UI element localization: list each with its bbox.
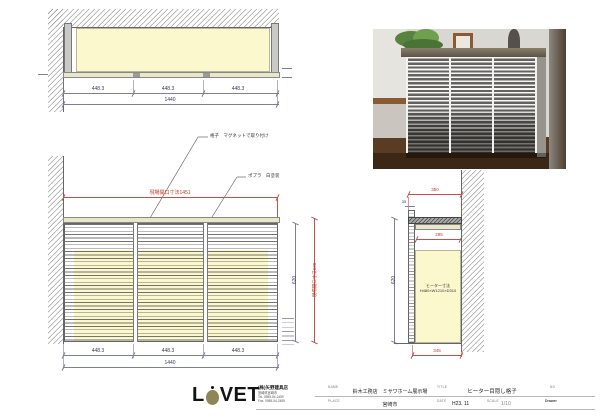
elev-seg-dim-2: 448.3 (148, 348, 188, 354)
sect-heater-label: ヒーター寸法 H480×W1210×D310 (416, 283, 460, 293)
sect-slat-column (408, 210, 415, 343)
field-scale-value: 1/10 (501, 401, 511, 407)
plan-wall-left-hatch (48, 9, 63, 112)
sect-top-width: 350 (420, 187, 450, 193)
plan-right-post (271, 23, 279, 76)
label-material-poplar: ポプラ 白塗装 (248, 173, 280, 178)
elev-divider-1 (133, 223, 138, 342)
plan-seg-dim-3: 448.3 (218, 86, 258, 92)
sect-top-dim-line (408, 194, 462, 195)
field-place-value: 宮崎市 (345, 401, 435, 408)
sect-ext-red (461, 197, 462, 215)
plan-left-post (64, 23, 72, 76)
photo-cover-shadow (406, 153, 546, 158)
company-info: (株)矢野建具店 宮崎県宮崎市 Tel. 0985-54-2459 Fax. 0… (258, 385, 288, 403)
plan-divider-1 (133, 73, 140, 77)
elev-opening-width: 現場開口寸法1451 (95, 190, 245, 196)
sect-inner-dim-line (416, 239, 461, 240)
sect-heater-block: ヒーター寸法 H480×W1210×D310 (415, 250, 461, 343)
plan-micro-dim-left (38, 74, 48, 75)
sect-bottom-dim-line (412, 355, 462, 356)
sect-sub-board (415, 224, 461, 230)
plan-heater-area (76, 28, 270, 72)
photo-cover-top (401, 48, 546, 57)
reference-photo (373, 29, 566, 169)
field-title-label: TITLE (437, 385, 447, 389)
company-fax: Fax. 0985-54-2459 (258, 399, 288, 403)
sect-height: 620 (391, 270, 397, 290)
field-name-label: NAME (328, 385, 338, 389)
elev-opening-height: 現場開口寸法630 (312, 253, 318, 307)
plan-micro-dim-right-2 (282, 77, 292, 78)
field-date-value: H23. 11 (452, 401, 469, 407)
field-no-label: NO (550, 385, 555, 389)
elev-opening-dim-drop (277, 197, 278, 218)
sect-slat-offset: 35 (398, 199, 410, 205)
plan-seg-dim-2: 448.3 (148, 86, 188, 92)
field-drawer-label: Drawer (545, 399, 557, 403)
field-scale-label: SCALE (487, 399, 499, 403)
logo-o-mark (206, 390, 219, 405)
photo-cover-post (492, 57, 494, 153)
photo-cover-post (406, 57, 408, 153)
logo-letter-l: L (192, 384, 205, 407)
title-block-bottomline (256, 409, 595, 410)
sect-floor-line (394, 343, 461, 344)
elev-seg-dim-3: 448.3 (218, 348, 258, 354)
plan-lattice-bar (63, 72, 280, 78)
elev-total-dim: 1440 (150, 360, 190, 366)
elev-opening-dim-line (63, 197, 278, 198)
elev-dim-line-1 (63, 355, 279, 356)
plan-micro-dim-right-1 (282, 68, 292, 69)
elev-tick-red (311, 341, 318, 345)
company-tel: Tel. 0985-54-2459 (258, 395, 288, 399)
company-logo: LVET (192, 384, 260, 407)
plan-dim-line-2 (63, 104, 279, 105)
heater-size-line2: H480×W1210×D310 (416, 288, 460, 293)
elev-body-height: 620 (292, 270, 298, 290)
sect-mini-dim (405, 206, 415, 207)
label-lattice-magnet: 格子 マグネットで取り付け (210, 133, 269, 138)
plan-divider-2 (203, 73, 210, 77)
field-place-label: PLACE (328, 399, 340, 403)
elev-wall-hatch (48, 156, 63, 344)
sect-wall-hatch (461, 170, 484, 352)
plan-dim-line-1 (63, 93, 279, 94)
elev-slat-pitch-dims (282, 318, 294, 345)
photo-cover-side (537, 57, 546, 157)
sect-top-board (408, 217, 462, 224)
photo-right-edge (549, 29, 566, 169)
photo-wall-under-shelf (373, 104, 407, 138)
field-name-value: 鈴木工務店 ミサワホーム展示場 (345, 388, 435, 395)
elev-slats (65, 224, 277, 341)
photo-cover-post (449, 57, 451, 153)
field-title-value: ヒーター目隠し格子 (452, 387, 532, 395)
drawing-sheet: 448.3 448.3 448.3 1440 (0, 0, 600, 420)
elev-seg-dim-1: 448.3 (78, 348, 118, 354)
photo-cover-post (535, 57, 537, 153)
photo-cover-shade (406, 57, 537, 153)
logo-letters-vet: VET (220, 384, 260, 407)
title-block-midline (315, 396, 595, 397)
plan-total-dim: 1440 (150, 97, 190, 103)
field-date-label: DATE (437, 399, 446, 403)
sect-bottom-width: 345 (424, 348, 450, 354)
plan-wall-top-hatch (48, 9, 279, 27)
elev-dim-line-2 (63, 367, 279, 368)
photo-picture-frame-inner (456, 36, 470, 48)
company-name: (株)矢野建具店 (258, 385, 288, 391)
sect-inner-width: 295 (424, 232, 454, 238)
plan-seg-dim-1: 448.3 (78, 86, 118, 92)
elev-divider-2 (203, 223, 208, 342)
